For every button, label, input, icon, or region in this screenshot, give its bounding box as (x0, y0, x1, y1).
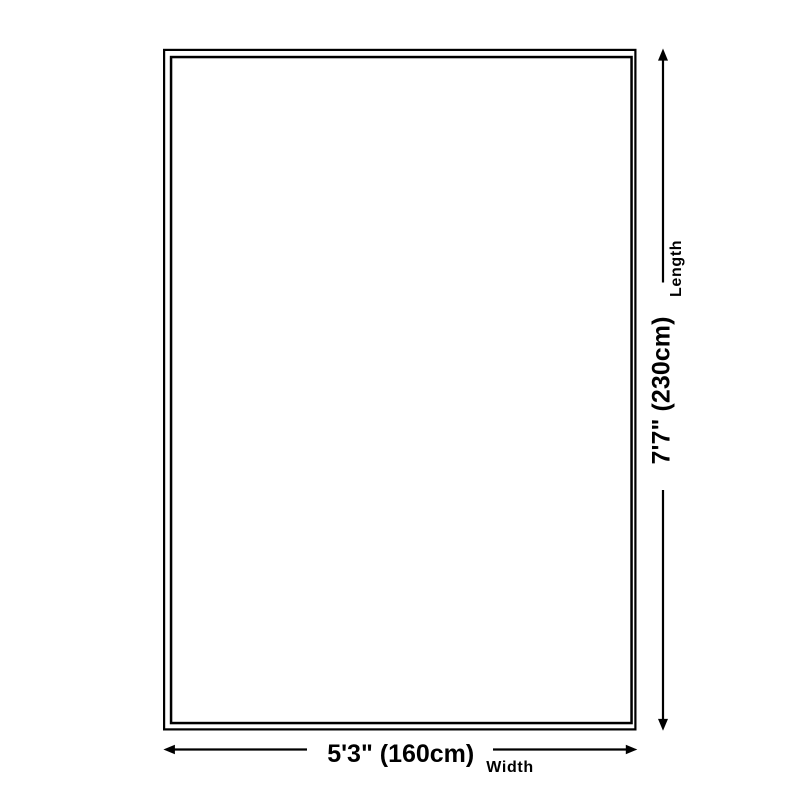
svg-text:5'3" (160cm): 5'3" (160cm) (327, 740, 474, 768)
svg-text:Width: Width (486, 759, 534, 776)
svg-text:Length: Length (668, 240, 685, 297)
svg-text:7'7" (230cm): 7'7" (230cm) (648, 316, 676, 464)
